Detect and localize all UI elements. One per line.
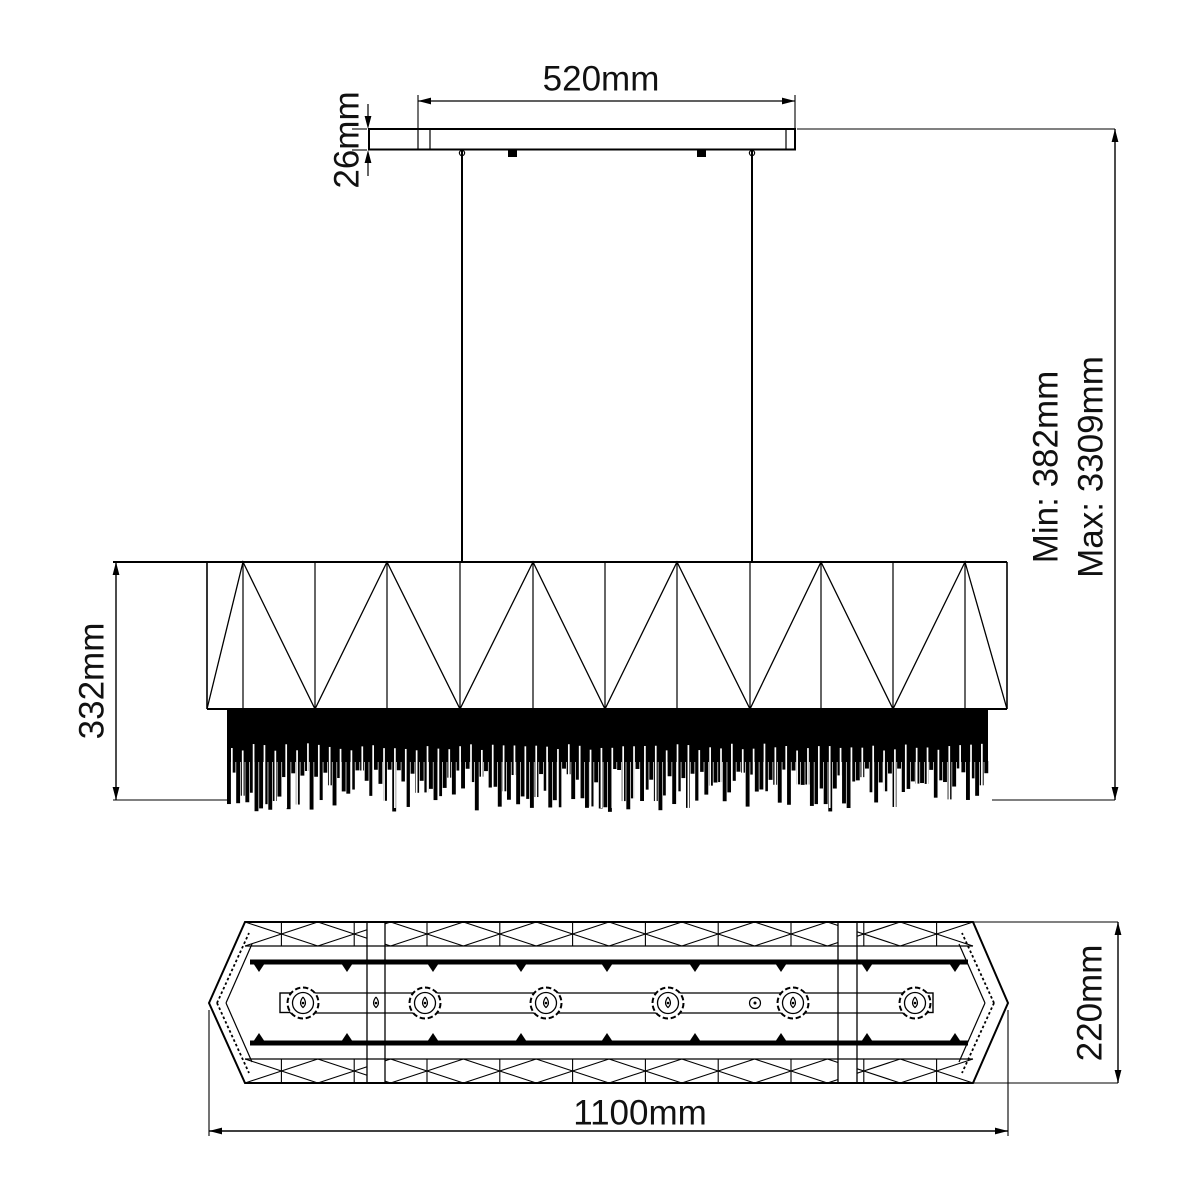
dim-label-suspension-min: Min: 382mm — [1029, 371, 1064, 564]
chandelier-line-drawing — [0, 0, 1200, 1200]
dim-label-suspension-max: Max: 3309mm — [1074, 356, 1109, 578]
dim-label-body-height: 332mm — [75, 623, 110, 740]
dim-label-canopy-width: 520mm — [543, 62, 660, 97]
dim-label-canopy-thickness: 26mm — [330, 91, 365, 188]
dim-label-overall-length: 1100mm — [573, 1096, 707, 1131]
dim-label-overall-depth: 220mm — [1073, 945, 1108, 1062]
technical-drawing-canvas: 520mm 26mm 332mm Min: 382mm Max: 3309mm … — [0, 0, 1200, 1200]
